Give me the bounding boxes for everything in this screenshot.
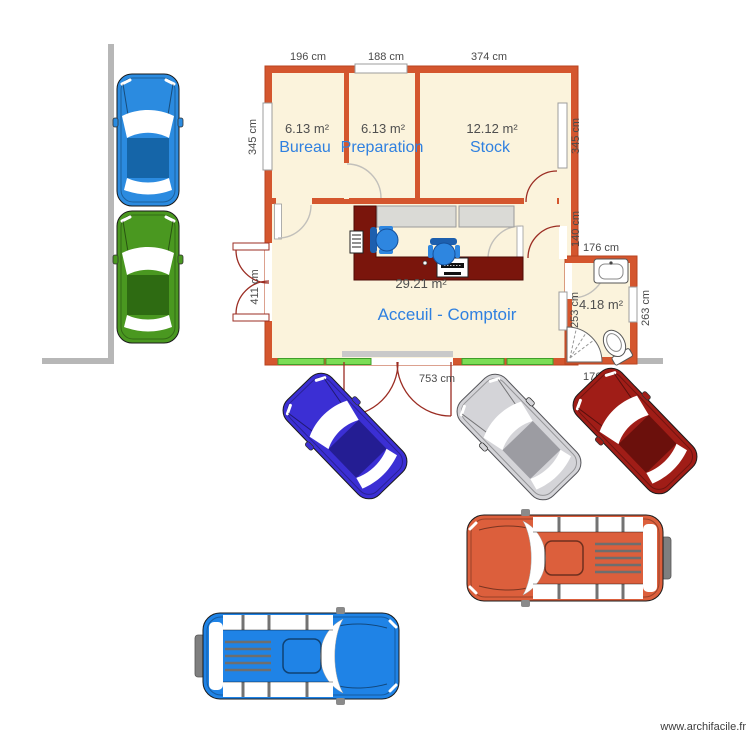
car-blue-sedan[interactable] xyxy=(113,74,183,206)
dim-stock-width: 374 cm xyxy=(471,51,507,63)
window-preparation-top[interactable] xyxy=(355,64,407,73)
area-acceuil: 29.21 m² xyxy=(395,276,447,291)
exterior-wall-left xyxy=(42,44,114,364)
room-name-acceuil: Acceuil - Comptoir xyxy=(378,305,517,324)
area-stock: 12.12 m² xyxy=(466,121,518,136)
dim-entry-height: 411 cm xyxy=(249,269,261,304)
dim-bureau-width: 196 cm xyxy=(290,51,326,63)
printer[interactable] xyxy=(350,231,363,253)
room-name-preparation: Preparation xyxy=(341,139,424,156)
area-bureau: 6.13 m² xyxy=(285,121,330,136)
car-blue-suv[interactable] xyxy=(195,607,399,705)
dim-right-height: 345 cm xyxy=(570,118,582,154)
dim-left-height: 345 cm xyxy=(247,119,259,155)
room-name-bureau: Bureau xyxy=(279,139,331,156)
car-indigo-sedan[interactable] xyxy=(274,364,416,508)
desks[interactable] xyxy=(377,206,514,227)
exterior-wall-right xyxy=(637,358,663,364)
window-stock-right[interactable] xyxy=(558,103,567,168)
dim-right-gap: 140 cm xyxy=(570,211,582,247)
wall-acceuil xyxy=(272,198,559,204)
wall-preparation-stock xyxy=(415,73,420,203)
floorplan-canvas: 196 cm 188 cm 374 cm 345 cm 345 cm 140 c… xyxy=(0,0,750,750)
dim-bath-height: 263 cm xyxy=(640,290,652,326)
car-green-sedan[interactable] xyxy=(113,211,183,343)
sink[interactable] xyxy=(594,259,628,283)
watermark-text: www.archifacile.fr xyxy=(659,721,746,733)
dim-preparation-width: 188 cm xyxy=(368,51,404,63)
area-sanitaire: 4.18 m² xyxy=(579,297,624,312)
car-orange-suv[interactable] xyxy=(467,509,671,607)
room-name-stock: Stock xyxy=(470,139,511,156)
window-bureau-left[interactable] xyxy=(263,103,272,170)
car-silver-sedan[interactable] xyxy=(448,365,590,509)
dim-bath-width: 176 cm xyxy=(583,242,619,254)
window-bath-right[interactable] xyxy=(629,287,637,322)
dim-bottom-width: 753 cm xyxy=(419,373,455,385)
area-preparation: 6.13 m² xyxy=(361,121,406,136)
window-bath-left[interactable] xyxy=(559,292,567,330)
